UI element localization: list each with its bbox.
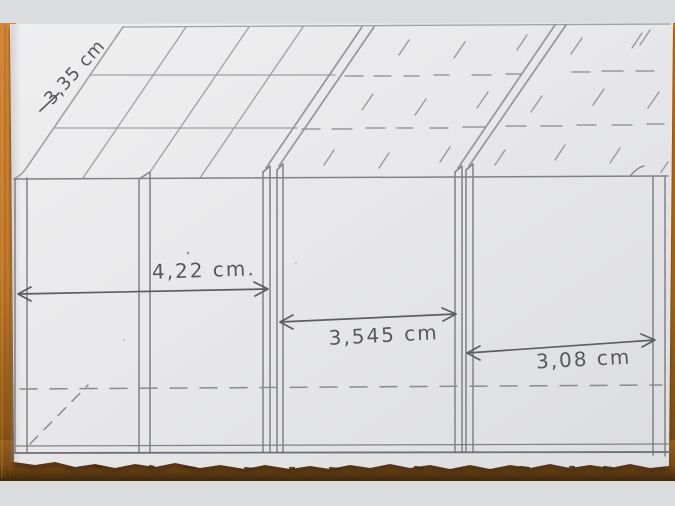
pencil-dot: [187, 252, 190, 255]
paper-left-edge-shading: [11, 24, 21, 462]
pencil-dot: [295, 262, 297, 264]
photographed-sketch: 3,35 cm 4,22 cm. 3,545 cm 3,08 cm: [0, 0, 675, 506]
pencil-dot: [123, 339, 125, 341]
dimension-label-left-section: 4,22 cm.: [152, 256, 257, 284]
paper-sheet: [10, 23, 673, 469]
dimension-label-right-section: 3,08 cm: [535, 345, 632, 374]
wall-base-line-lower: [12, 452, 670, 453]
